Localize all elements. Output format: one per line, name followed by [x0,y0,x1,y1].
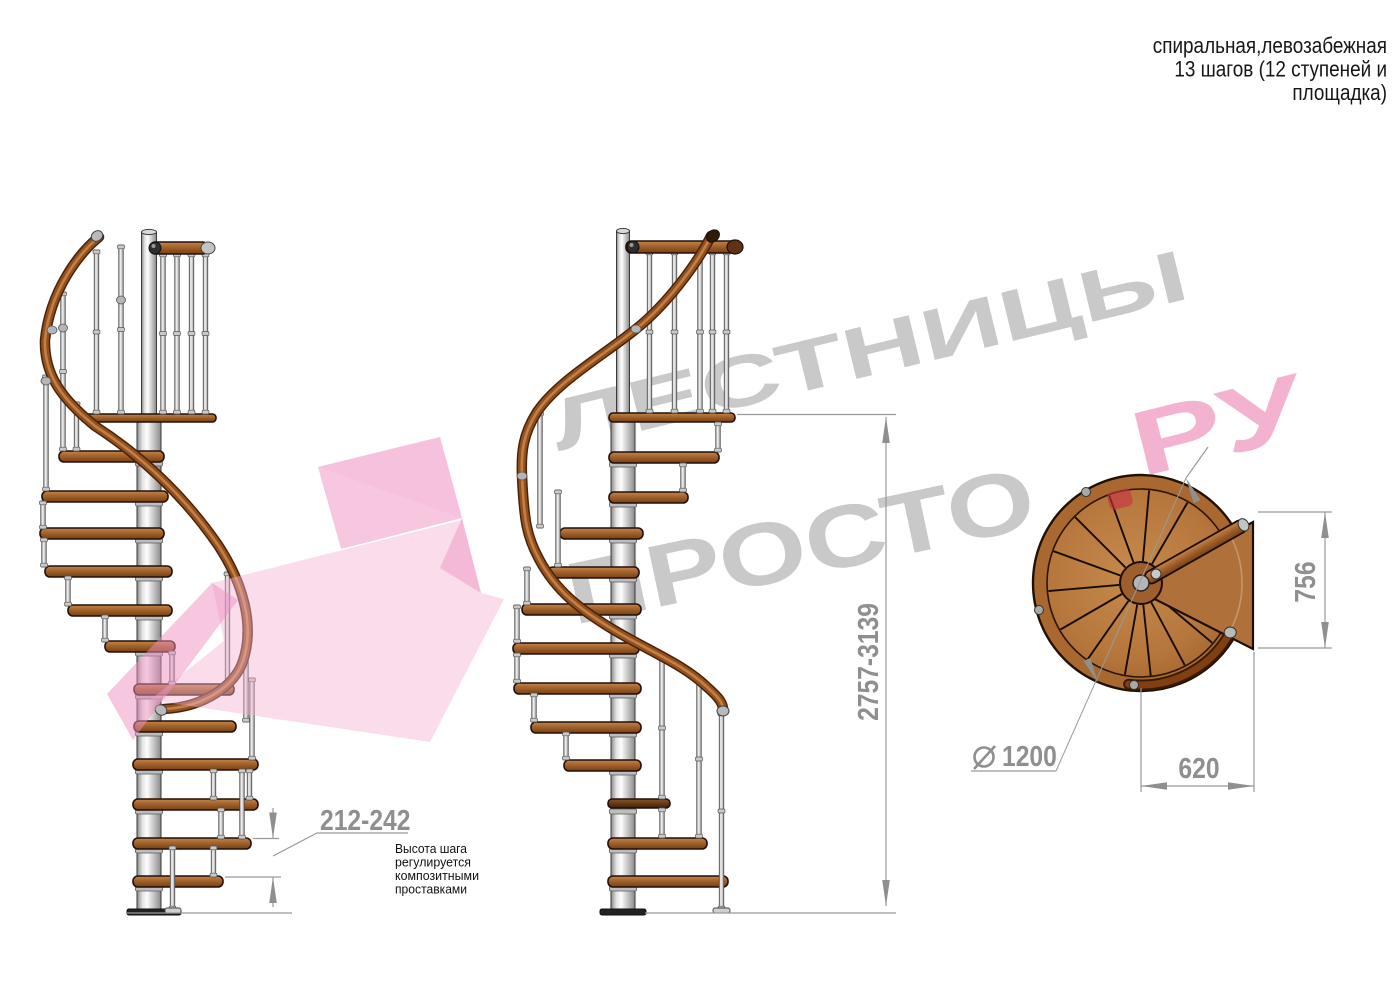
svg-text:площадка): площадка) [1292,81,1387,106]
svg-text:регулируется: регулируется [395,856,471,870]
svg-text:1200: 1200 [1002,740,1057,772]
svg-text:Высота шага: Высота шага [395,842,467,856]
svg-text:620: 620 [1178,752,1219,784]
svg-text:13 шагов (12 ступеней и: 13 шагов (12 ступеней и [1174,57,1387,82]
svg-text:проставками: проставками [395,883,467,897]
svg-text:212-242: 212-242 [320,804,410,836]
svg-text:2757-3139: 2757-3139 [852,603,884,721]
svg-text:спиральная,левозабежная: спиральная,левозабежная [1153,34,1387,59]
svg-text:композитными: композитными [395,869,479,883]
svg-text:756: 756 [1289,561,1321,602]
